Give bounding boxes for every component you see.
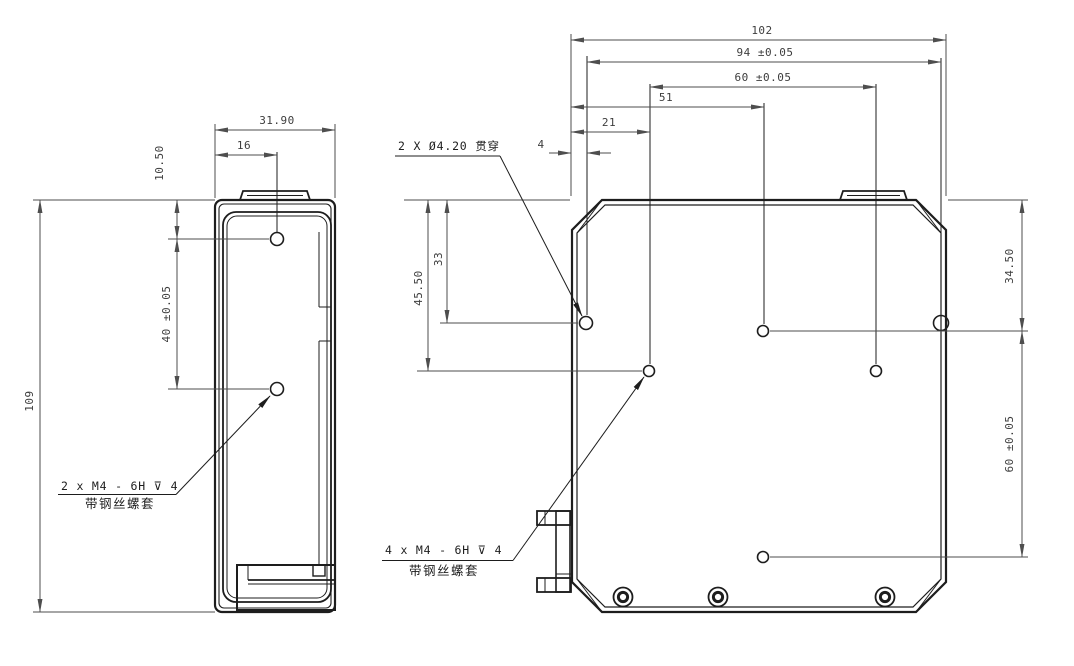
dim-right-height-60: 60 ±0.05	[1003, 416, 1016, 473]
right-view: 102 94 ±0.05 60 ±0.05 51 21 4 45.50 33	[382, 24, 1028, 612]
right-thread-leader	[513, 377, 644, 561]
left-view: 31.90 16 10.50 40 ±0.05 109 2 x M4 - 6H …	[23, 114, 335, 612]
left-thread-note-line1: 2 x M4 - 6H ⊽ 4	[61, 479, 178, 493]
dim-right-width-51: 51	[659, 91, 673, 104]
left-view-top-tab	[240, 191, 310, 200]
dim-left-hole-top: 10.50	[153, 145, 166, 181]
left-view-bottom-hole	[271, 383, 284, 396]
hole-note-text: 2 X Ø4.20 贯穿	[398, 139, 500, 153]
right-view-hole-columns	[587, 56, 941, 364]
left-view-side-notch	[319, 232, 331, 565]
engineering-drawing-canvas: 31.90 16 10.50 40 ±0.05 109 2 x M4 - 6H …	[0, 0, 1074, 666]
right-view-bottom-screws	[614, 588, 895, 607]
left-thread-note-line2: 带钢丝螺套	[85, 496, 155, 511]
hole-note-leader	[500, 156, 582, 316]
right-view-top-tab	[840, 191, 907, 200]
right-view-left-bracket	[537, 511, 573, 592]
dim-right-width-4: 4	[537, 138, 544, 151]
left-view-dimensions: 31.90 16 10.50 40 ±0.05 109	[23, 114, 335, 612]
left-view-top-hole	[271, 233, 284, 246]
right-view-thread-note: 4 x M4 - 6H ⊽ 4 带钢丝螺套	[382, 377, 644, 578]
left-view-body-outline	[215, 200, 335, 612]
right-view-top-dimensions: 102 94 ±0.05 60 ±0.05 51 21 4	[537, 24, 946, 196]
right-view-hole-a	[580, 317, 593, 330]
dim-left-hole-spacing: 40 ±0.05	[160, 286, 173, 343]
dim-right-width-21: 21	[602, 116, 616, 129]
dim-left-hole-x: 16	[237, 139, 251, 152]
right-view-hole-f	[758, 552, 769, 563]
dim-right-height-45-5: 45.50	[412, 270, 425, 306]
right-thread-note-line1: 4 x M4 - 6H ⊽ 4	[385, 543, 502, 557]
right-view-hole-b	[644, 366, 655, 377]
right-view-hole-c	[758, 326, 769, 337]
right-view-body-outline	[572, 200, 946, 612]
dim-right-width-94: 94 ±0.05	[737, 46, 794, 59]
dim-right-width-60: 60 ±0.05	[735, 71, 792, 84]
right-view-right-dimensions: 34.50 60 ±0.05	[770, 200, 1028, 557]
dim-right-height-34-5: 34.50	[1003, 248, 1016, 284]
dim-left-width: 31.90	[259, 114, 295, 127]
cad-drawing: 31.90 16 10.50 40 ±0.05 109 2 x M4 - 6H …	[0, 0, 1074, 666]
right-view-left-dimensions: 45.50 33	[404, 200, 642, 371]
left-view-bottom-foot	[237, 565, 335, 610]
left-view-thread-note: 2 x M4 - 6H ⊽ 4 带钢丝螺套	[58, 396, 270, 511]
right-view-hole-e	[871, 366, 882, 377]
dim-right-height-33: 33	[432, 252, 445, 266]
right-thread-note-line2: 带钢丝螺套	[409, 563, 479, 578]
dim-right-overall-width: 102	[751, 24, 772, 37]
dim-left-height: 109	[23, 390, 36, 411]
